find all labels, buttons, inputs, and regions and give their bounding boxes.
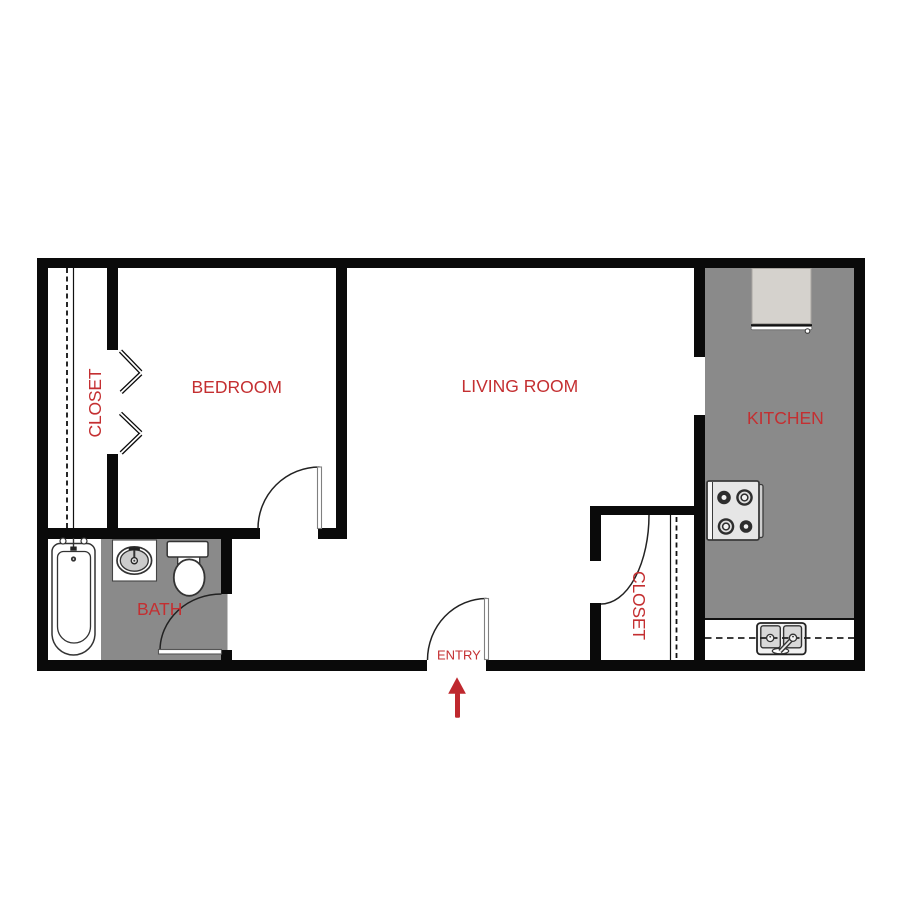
svg-text:ENTRY: ENTRY [437, 648, 481, 663]
svg-text:KITCHEN: KITCHEN [747, 408, 824, 428]
svg-text:CLOSET: CLOSET [85, 368, 105, 437]
svg-text:LIVING ROOM: LIVING ROOM [462, 376, 579, 396]
svg-text:CLOSET: CLOSET [629, 571, 649, 640]
svg-text:BATH: BATH [137, 599, 182, 619]
svg-text:BEDROOM: BEDROOM [192, 377, 282, 397]
